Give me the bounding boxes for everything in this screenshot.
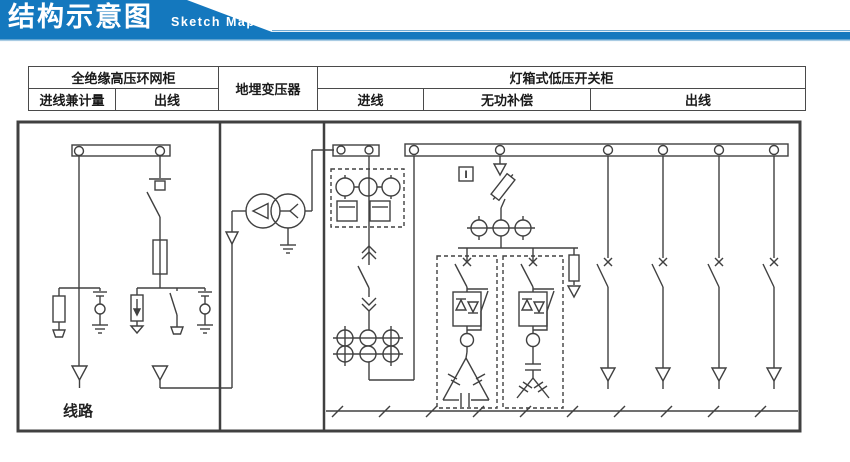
hv-panel: 线路 <box>53 145 232 420</box>
energy-meter-icon <box>337 201 357 221</box>
switch-blade-icon <box>358 266 369 288</box>
ground-icon <box>131 326 143 333</box>
lv-panel: I <box>331 144 788 408</box>
compensation-ct-group <box>467 216 535 240</box>
switch-blade-icon <box>170 293 177 315</box>
outgoing-feeder-3 <box>708 156 726 389</box>
star-capacitor-icon <box>517 352 549 398</box>
switch-blade-icon <box>708 264 719 287</box>
energy-meter-icon <box>370 201 390 221</box>
switch-blade-icon <box>147 192 160 217</box>
panel-borders <box>18 122 800 431</box>
switch-blade-icon <box>652 264 663 287</box>
cable-arrow-icon <box>226 232 238 244</box>
voltage-indicator-icon <box>95 304 105 314</box>
capacitor-bank-2 <box>503 248 563 408</box>
hv-feeder-incoming <box>53 156 108 388</box>
instrument-icon <box>359 178 377 196</box>
fuse-icon <box>53 296 65 322</box>
arrow-icon <box>568 286 580 297</box>
schematic-diagram: 线路 <box>0 0 850 462</box>
cable-arrow-icon <box>656 368 670 381</box>
terminal-icon <box>53 330 65 337</box>
compensation-branch: I <box>437 156 580 408</box>
transformer-symbol <box>246 194 305 228</box>
transformer-section <box>226 150 334 388</box>
terminal-icon <box>171 327 183 334</box>
metering-box <box>331 169 404 227</box>
hv-feeder-outgoing <box>131 156 232 388</box>
lv-main-busbar <box>405 144 788 156</box>
switch-blade-icon <box>521 264 533 287</box>
instrument-icon <box>336 178 354 196</box>
instrument-box-label: I <box>464 169 467 181</box>
voltage-indicator-icon <box>200 304 210 314</box>
cable-arrow-icon <box>153 366 168 380</box>
cable-arrow-icon <box>601 368 615 381</box>
capacitor-bank-1 <box>437 248 497 408</box>
outgoing-feeder-4 <box>763 156 781 389</box>
reactor-icon <box>527 334 540 347</box>
arrow-icon <box>494 164 506 175</box>
incoming-ct-group <box>333 326 403 366</box>
cable-arrow-icon <box>712 368 726 381</box>
ground-icon <box>280 228 296 253</box>
line-label: 线路 <box>63 402 94 420</box>
instrument-icon <box>382 178 400 196</box>
bypass-switch-icon <box>467 289 488 330</box>
delta-capacitor-icon <box>443 358 489 407</box>
fuse-icon <box>569 255 579 281</box>
lv-incoming-busbar <box>333 145 379 156</box>
reactor-icon <box>461 334 474 347</box>
contact-icon <box>155 181 165 190</box>
hv-busbar <box>72 145 170 156</box>
bypass-switch-icon <box>533 289 554 330</box>
outgoing-feeder-2 <box>652 156 670 389</box>
delta-winding-icon <box>253 204 268 219</box>
switch-blade-icon <box>763 264 774 287</box>
outgoing-feeder-1 <box>597 156 615 389</box>
switch-blade-icon <box>597 264 608 287</box>
cable-arrow-icon <box>767 368 781 381</box>
switch-blade-icon <box>455 264 467 287</box>
cable-arrow-icon <box>72 366 87 380</box>
inclined-fuse-icon <box>489 171 517 202</box>
discharge-fuse <box>568 248 580 297</box>
